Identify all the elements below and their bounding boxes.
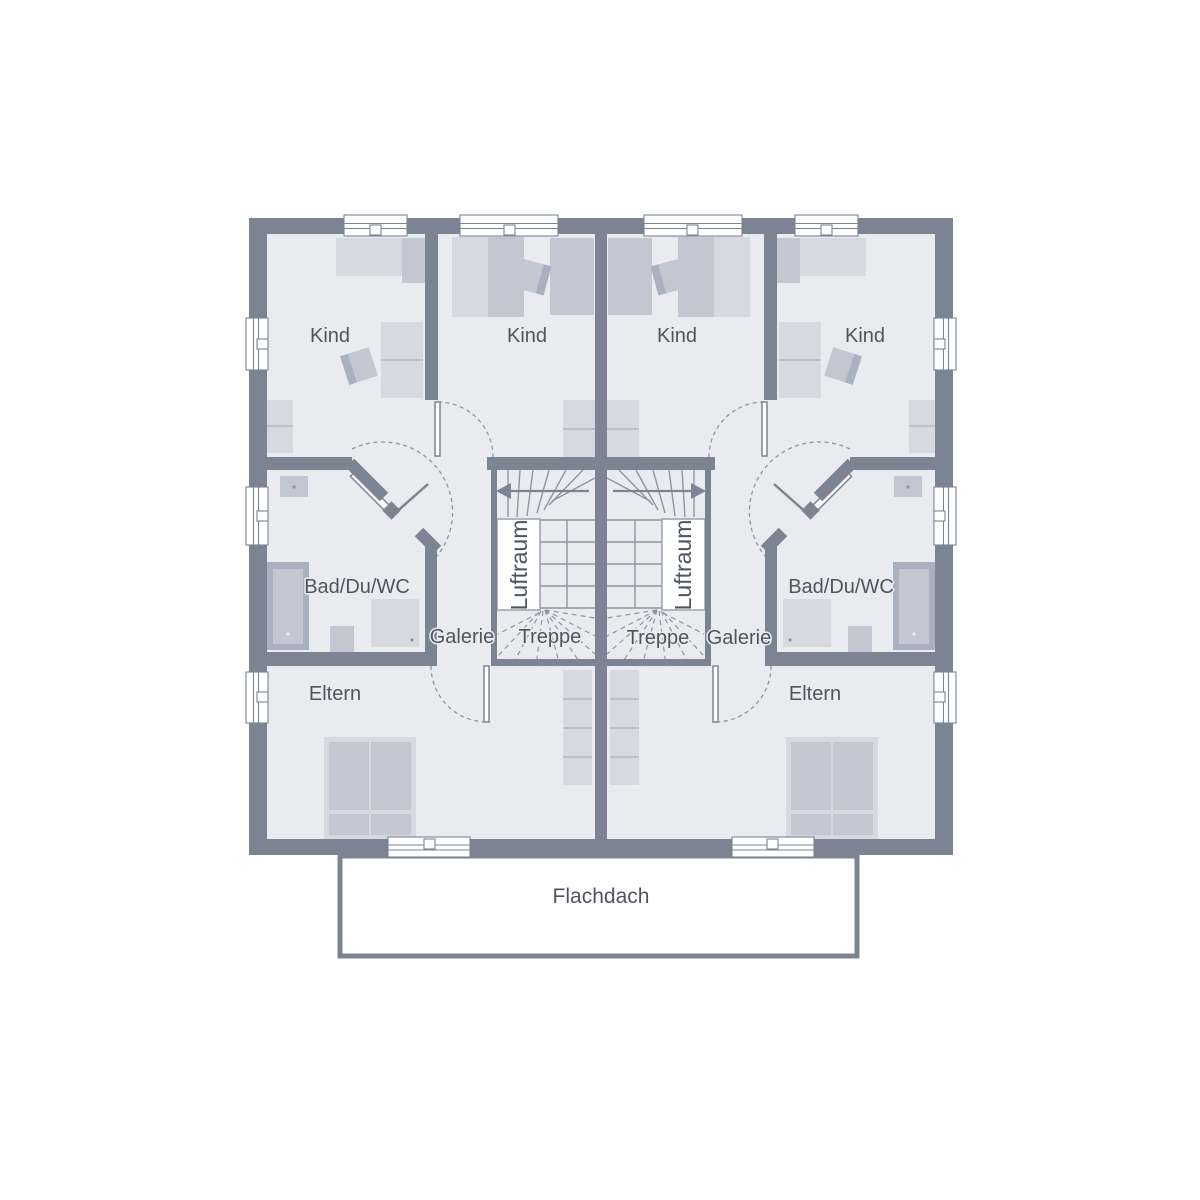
window-top-inner <box>460 215 558 236</box>
mattress-right <box>371 742 411 810</box>
stair-bottom-wall <box>491 659 601 666</box>
room-label-luftraum-right: Luftraum <box>670 520 696 611</box>
room-label-kind-right-outer: Kind <box>845 325 885 347</box>
window-side-bad <box>246 487 268 545</box>
floor-plan-page: Kind Kind Kind Kind Bad/Du/WC Bad/Du/WC … <box>0 0 1200 1200</box>
room-label-treppe-right: Treppe <box>627 627 690 649</box>
room-label-bad-left: Bad/Du/WC <box>304 576 410 598</box>
window-top-outer <box>344 215 407 236</box>
bed <box>336 238 402 276</box>
window-handle <box>257 692 268 702</box>
eltern-door-leaf <box>484 666 489 722</box>
bathtub-drain <box>286 632 289 635</box>
window-side-kind <box>246 318 268 370</box>
window-handle <box>424 839 435 849</box>
party-wall <box>595 234 601 839</box>
wardrobe-left-section <box>452 237 488 317</box>
bed <box>550 238 594 315</box>
washbasin-tap <box>292 485 295 488</box>
floor-plan-svg: Kind Kind Kind Kind Bad/Du/WC Bad/Du/WC … <box>0 0 1200 1200</box>
room-label-flachdach: Flachdach <box>553 885 650 908</box>
room-label-eltern-right: Eltern <box>789 683 841 705</box>
window-handle <box>257 511 268 521</box>
toilet <box>330 626 354 652</box>
eltern-top-wall <box>249 652 437 666</box>
window-handle <box>370 225 381 235</box>
kind-divider-wall <box>425 234 438 400</box>
room-label-eltern-left: Eltern <box>309 683 361 705</box>
room-label-treppe-left: Treppe <box>519 626 582 648</box>
kind-door-leaf <box>435 402 440 456</box>
shower-drain <box>410 638 413 641</box>
bad-top-wall <box>249 457 352 470</box>
room-label-galerie-left: Galerie <box>430 626 494 648</box>
window-side-eltern <box>246 672 268 723</box>
bed-pillow <box>402 238 426 283</box>
stair-top-wall <box>487 457 601 470</box>
window-handle <box>257 339 268 349</box>
room-label-galerie-right: Galerie <box>707 627 771 649</box>
room-label-kind-left-outer: Kind <box>310 325 350 347</box>
room-label-luftraum-left: Luftraum <box>506 520 532 611</box>
pillow-right <box>371 814 411 835</box>
room-label-kind-left-inner: Kind <box>507 325 547 347</box>
room-label-bad-right: Bad/Du/WC <box>788 576 894 598</box>
room-label-kind-right-inner: Kind <box>657 325 697 347</box>
pillow-left <box>329 814 369 835</box>
window-handle <box>504 225 515 235</box>
mattress-left <box>329 742 369 810</box>
window-bottom-eltern <box>388 837 470 857</box>
